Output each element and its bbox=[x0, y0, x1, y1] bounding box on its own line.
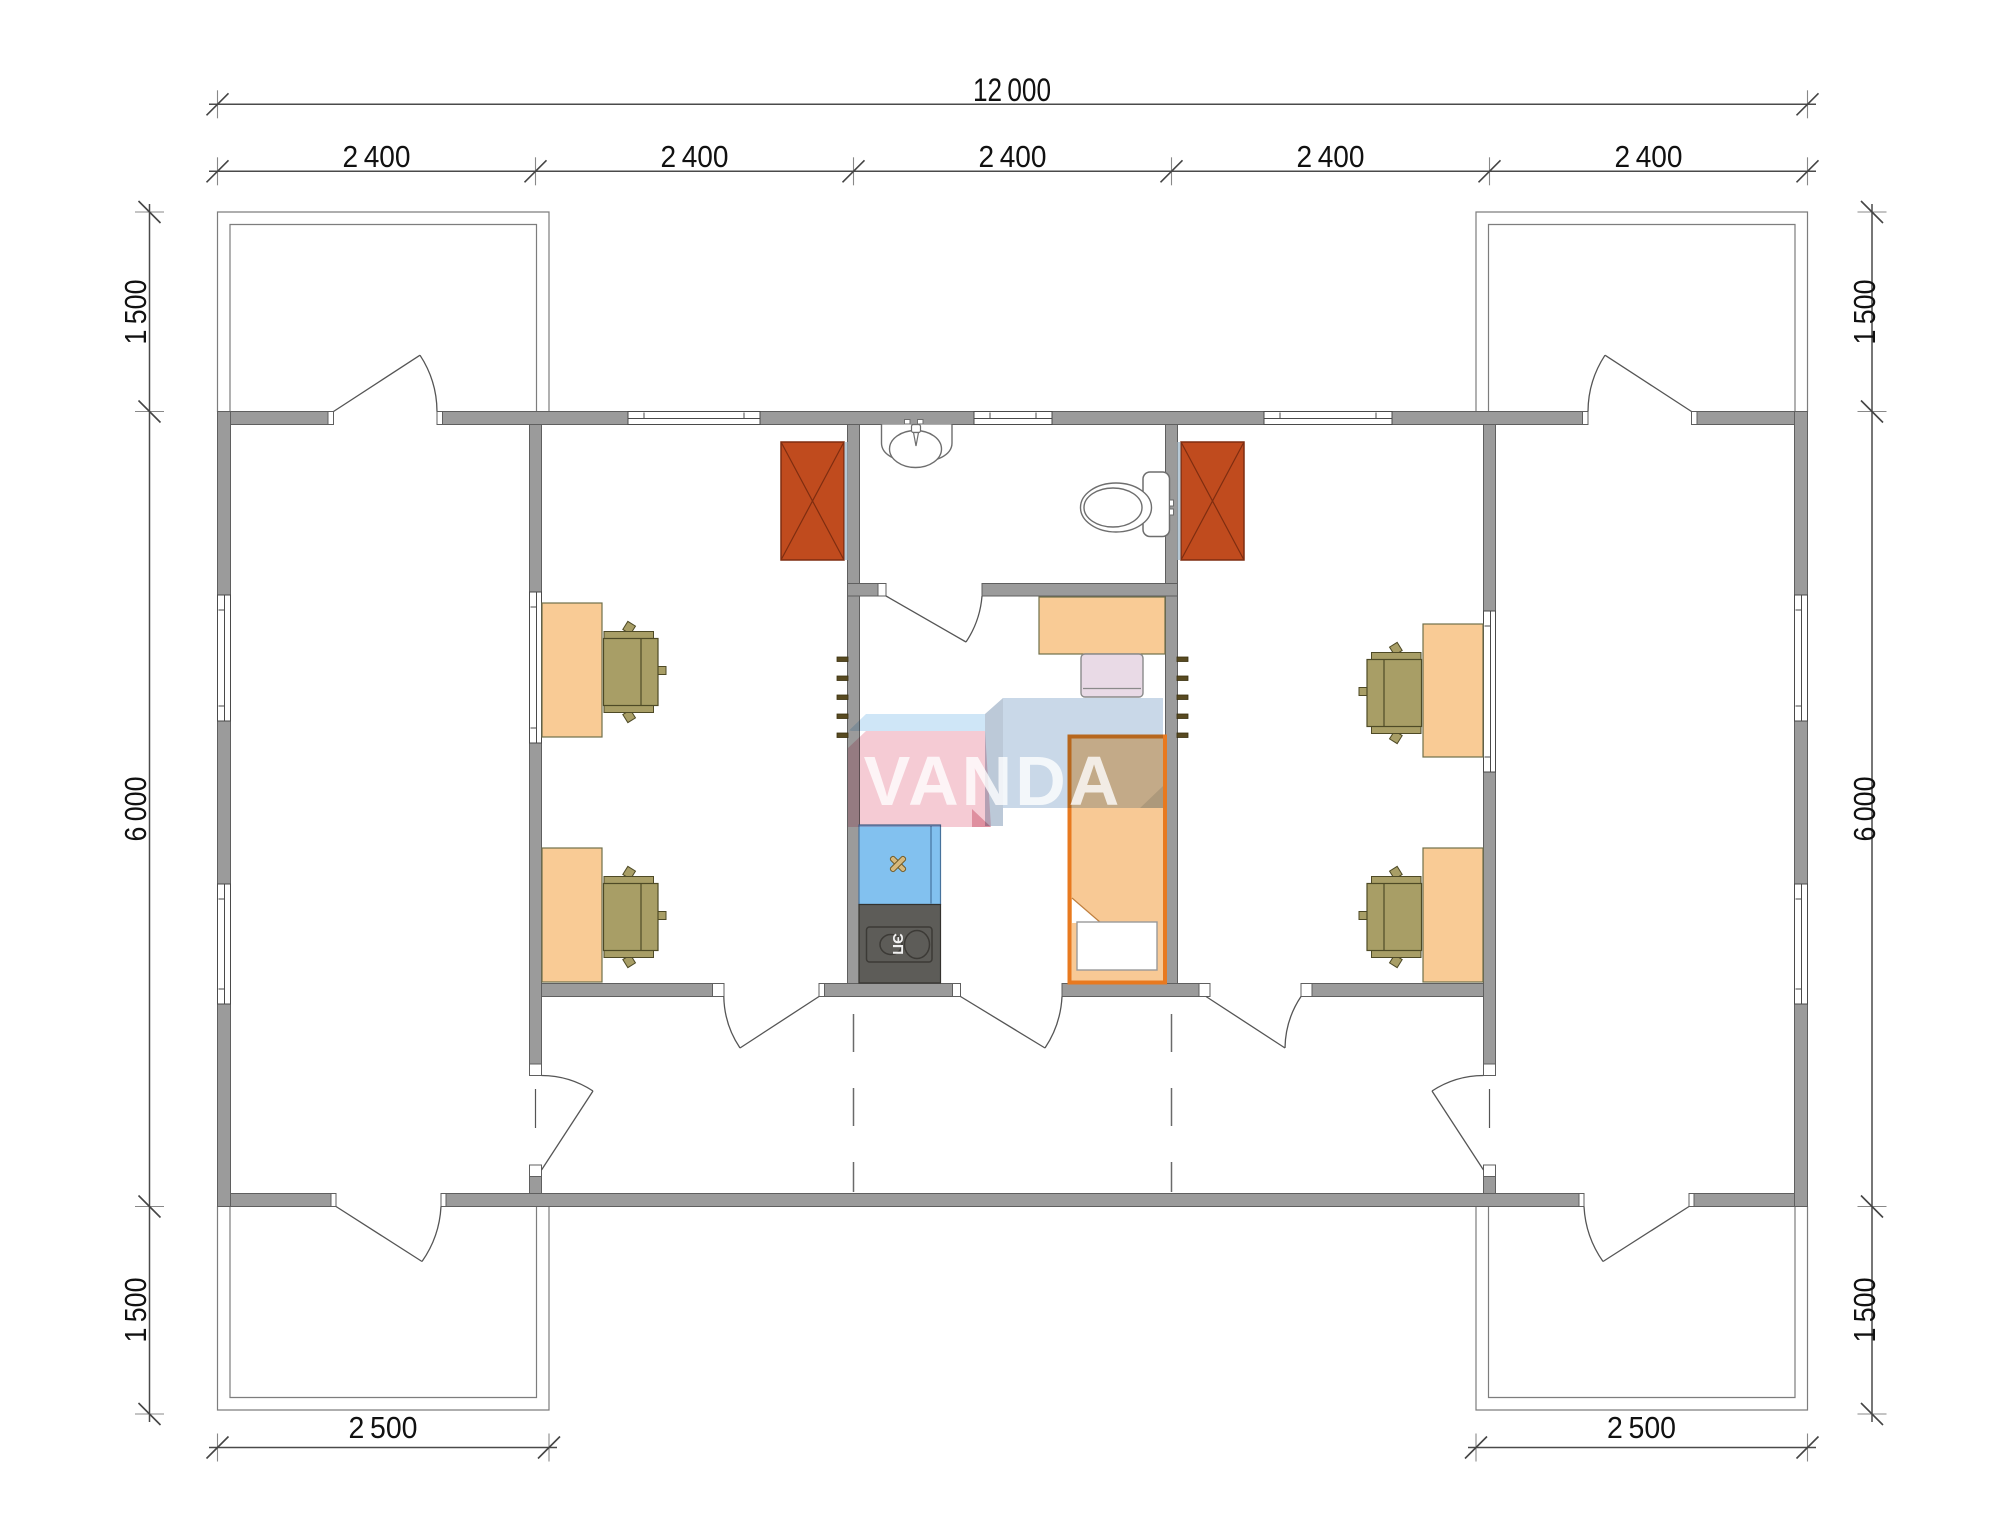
svg-text:6 000: 6 000 bbox=[1847, 777, 1882, 842]
svg-text:12 000: 12 000 bbox=[973, 72, 1051, 108]
svg-text:VANDA: VANDA bbox=[864, 742, 1123, 820]
svg-text:1 500: 1 500 bbox=[118, 280, 153, 345]
svg-text:2 400: 2 400 bbox=[1297, 139, 1365, 174]
svg-text:1 500: 1 500 bbox=[118, 1278, 153, 1343]
svg-text:2 500: 2 500 bbox=[1607, 1410, 1676, 1445]
svg-text:2 500: 2 500 bbox=[349, 1410, 418, 1445]
svg-text:2 400: 2 400 bbox=[979, 139, 1047, 174]
svg-text:2 400: 2 400 bbox=[1615, 139, 1683, 174]
svg-text:1 500: 1 500 bbox=[1847, 280, 1882, 345]
svg-text:ЭП: ЭП bbox=[889, 933, 906, 954]
svg-text:1 500: 1 500 bbox=[1847, 1278, 1882, 1343]
svg-text:2 400: 2 400 bbox=[661, 139, 729, 174]
svg-text:2 400: 2 400 bbox=[343, 139, 411, 174]
svg-text:6 000: 6 000 bbox=[118, 777, 153, 842]
